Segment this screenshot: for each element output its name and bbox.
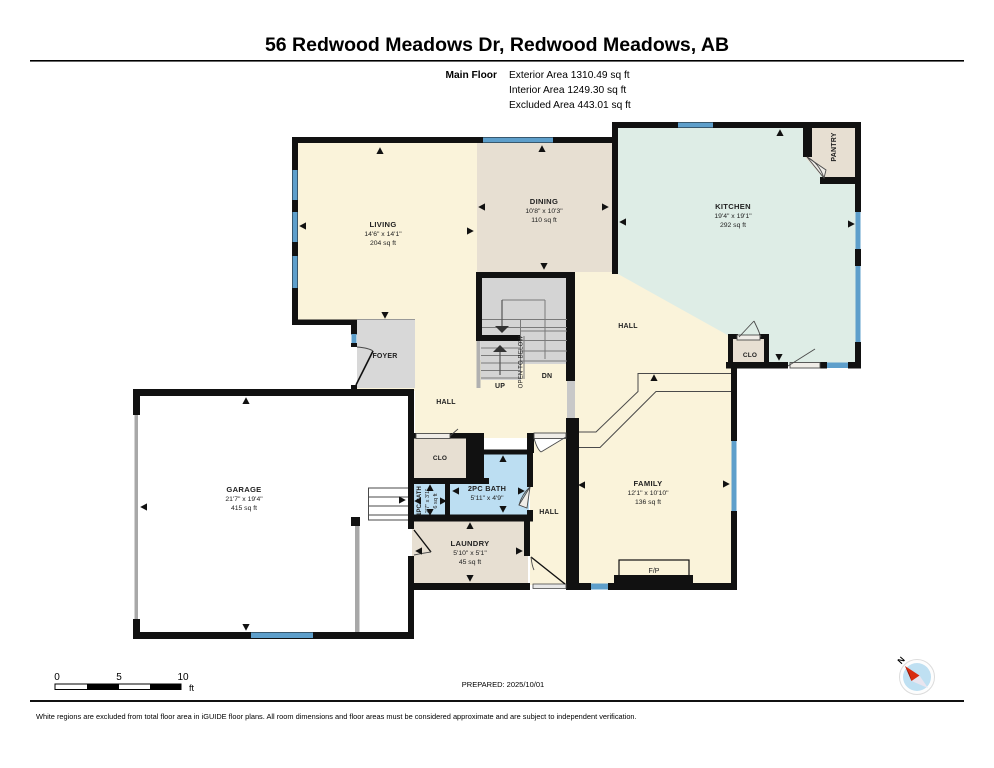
svg-text:2PC BATH: 2PC BATH (468, 484, 506, 493)
svg-text:LAUNDRY: LAUNDRY (451, 539, 490, 548)
svg-text:12'1" x 10'10": 12'1" x 10'10" (627, 490, 669, 497)
svg-text:136 sq ft: 136 sq ft (635, 499, 661, 506)
svg-text:FAMILY: FAMILY (634, 479, 663, 488)
svg-text:CLO: CLO (433, 455, 447, 462)
svg-text:Main Floor: Main Floor (446, 70, 498, 81)
svg-text:6 sq ft: 6 sq ft (433, 493, 439, 509)
svg-text:LIVING: LIVING (369, 220, 396, 229)
svg-text:56 Redwood Meadows Dr, Redwood: 56 Redwood Meadows Dr, Redwood Meadows, … (265, 34, 729, 56)
svg-text:204 sq ft: 204 sq ft (370, 240, 396, 247)
svg-text:14'6" x 14'1": 14'6" x 14'1" (364, 231, 402, 238)
svg-text:GARAGE: GARAGE (226, 485, 261, 494)
svg-text:Interior Area 1249.30 sq ft: Interior Area 1249.30 sq ft (509, 85, 626, 96)
svg-text:45 sq ft: 45 sq ft (459, 559, 481, 566)
svg-text:10: 10 (177, 672, 189, 683)
svg-text:10'8" x 10'3": 10'8" x 10'3" (525, 208, 563, 215)
svg-text:PANTRY: PANTRY (831, 132, 838, 161)
svg-text:CLO: CLO (743, 352, 757, 359)
svg-text:HALL: HALL (539, 509, 559, 516)
svg-text:HALL: HALL (618, 323, 638, 330)
svg-text:5'10" x 5'1": 5'10" x 5'1" (453, 550, 487, 557)
svg-text:PREPARED: 2025/10/01: PREPARED: 2025/10/01 (462, 680, 544, 689)
svg-text:F/P: F/P (649, 568, 660, 575)
svg-text:5'11" x 4'9": 5'11" x 4'9" (471, 495, 505, 502)
svg-text:110 sq ft: 110 sq ft (531, 217, 557, 224)
svg-text:21'7" x 19'4": 21'7" x 19'4" (225, 496, 263, 503)
svg-text:0: 0 (54, 672, 60, 683)
svg-text:5: 5 (116, 672, 122, 683)
svg-text:UP: UP (495, 383, 505, 390)
svg-text:DINING: DINING (530, 197, 558, 206)
svg-text:ft: ft (189, 683, 195, 693)
svg-text:FOYER: FOYER (372, 353, 397, 360)
svg-text:19'4" x 19'1": 19'4" x 19'1" (714, 213, 752, 220)
svg-text:292 sq ft: 292 sq ft (720, 222, 746, 229)
svg-text:DN: DN (542, 373, 553, 380)
svg-text:Excluded Area 443.01 sq ft: Excluded Area 443.01 sq ft (509, 100, 631, 111)
svg-text:KITCHEN: KITCHEN (715, 202, 751, 211)
svg-text:415 sq ft: 415 sq ft (231, 505, 257, 512)
svg-text:HALL: HALL (436, 399, 456, 406)
svg-text:White regions are excluded fro: White regions are excluded from total fl… (36, 712, 637, 721)
svg-text:Exterior Area 1310.49 sq ft: Exterior Area 1310.49 sq ft (509, 70, 630, 81)
svg-text:OPEN TO BELOW: OPEN TO BELOW (519, 336, 525, 389)
